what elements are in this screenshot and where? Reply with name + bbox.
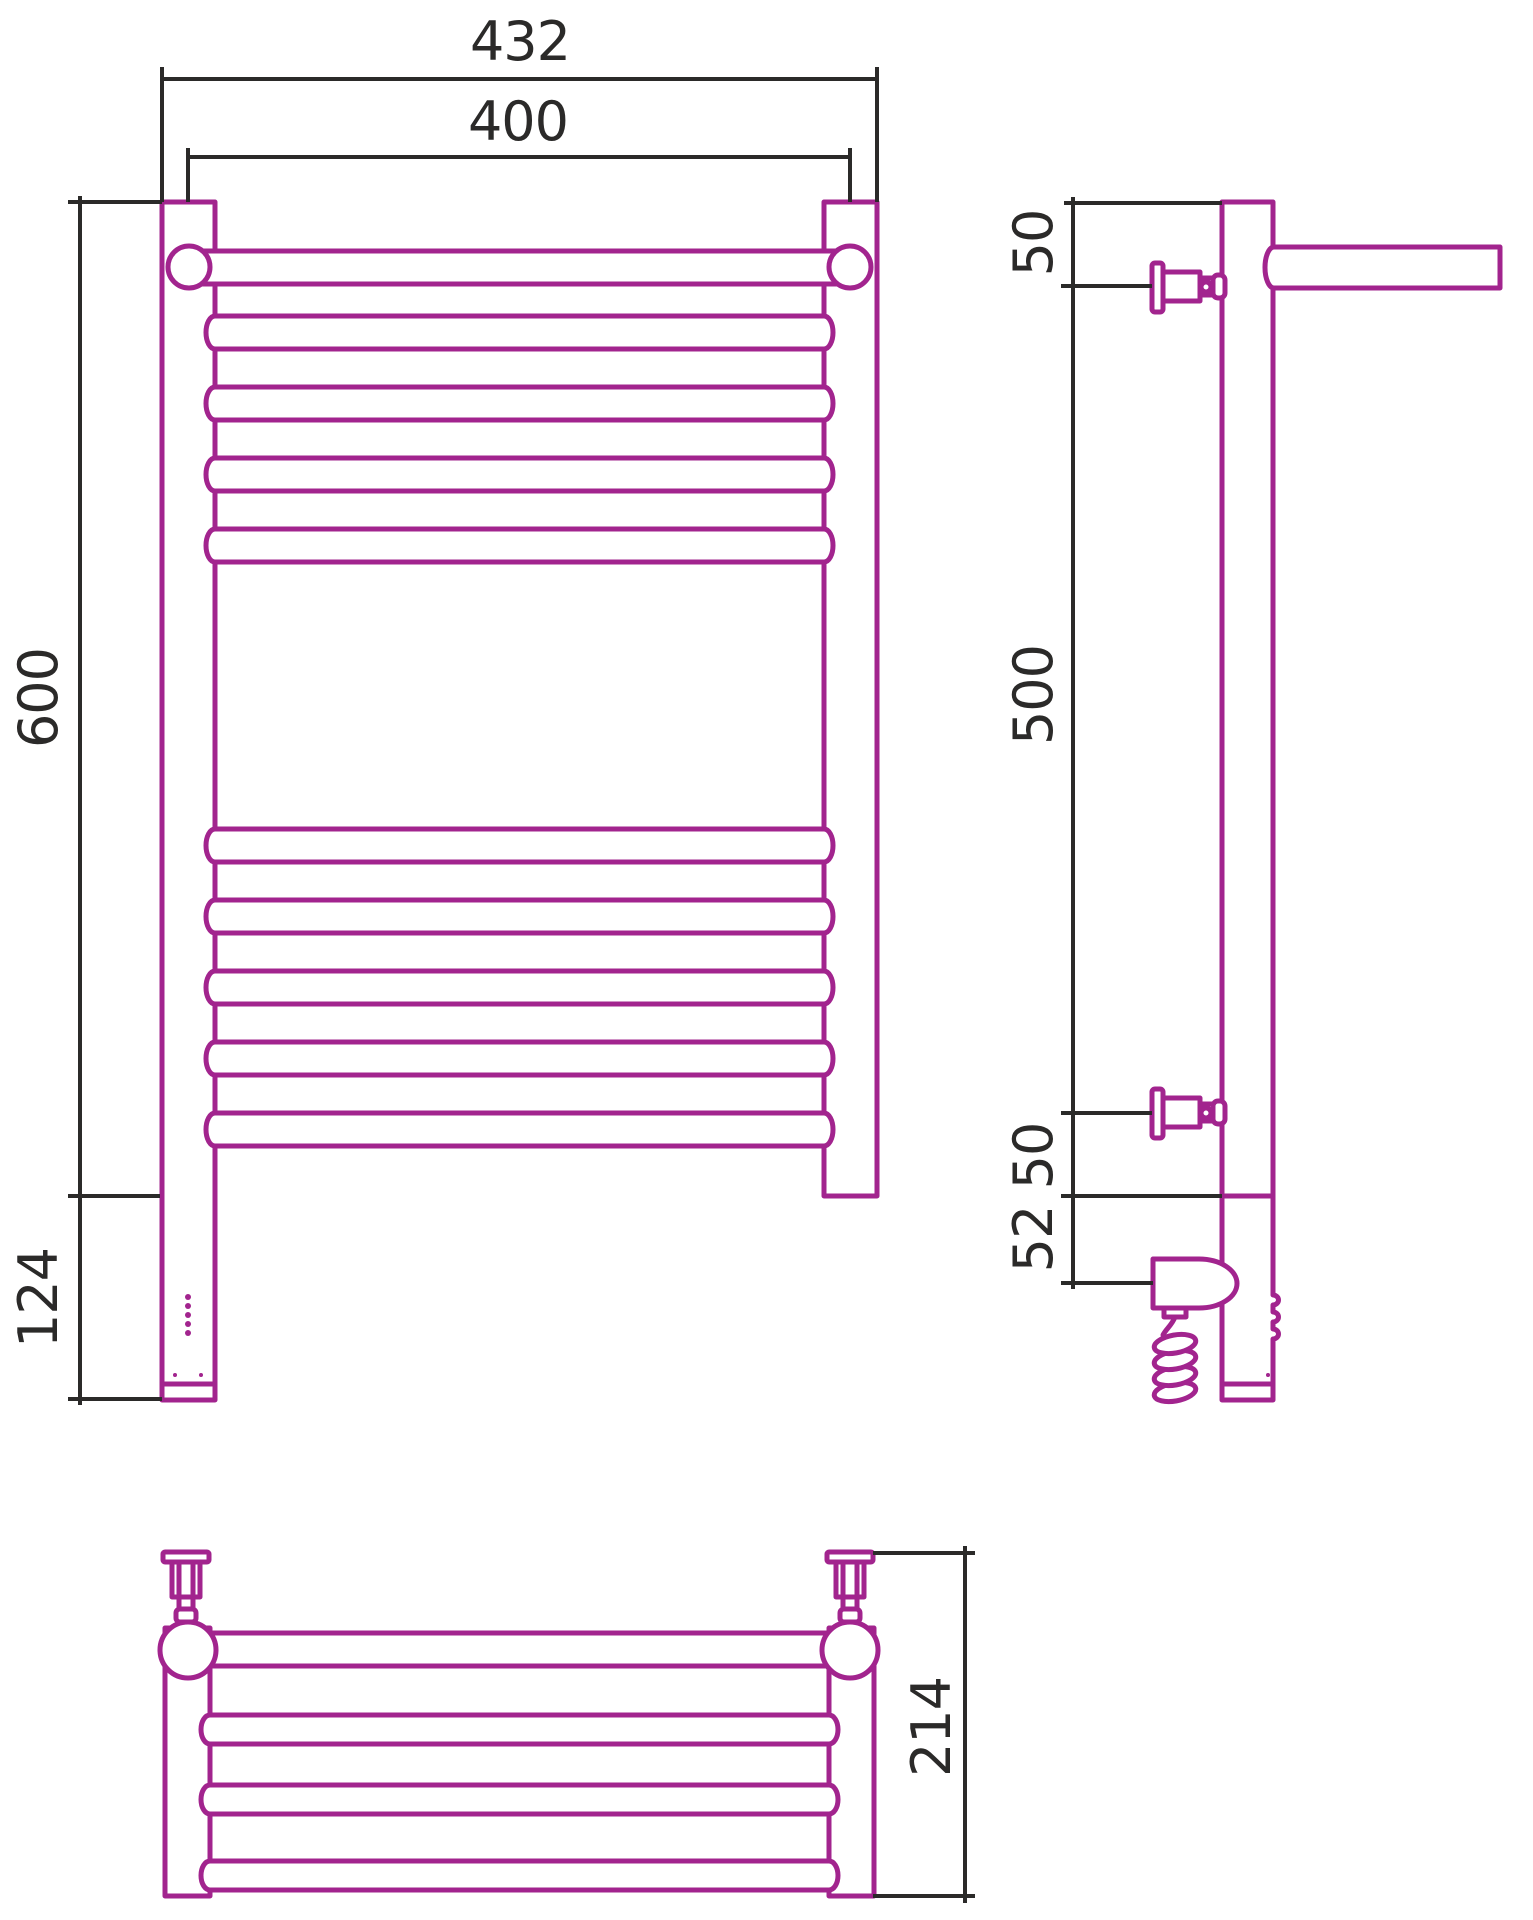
dim-axes-width: 400 xyxy=(188,90,850,202)
rung xyxy=(206,1042,833,1075)
shelf-bar xyxy=(201,1715,838,1744)
side-upper-wall-bracket xyxy=(1152,263,1225,312)
side-lower-wall-bracket xyxy=(1152,1089,1225,1138)
spiral-cord xyxy=(1153,1331,1197,1404)
rung xyxy=(206,900,833,933)
top-view xyxy=(160,1552,878,1896)
dim-label-element-offset: 52 xyxy=(1002,1206,1065,1273)
shelf-bar xyxy=(201,1861,838,1890)
rung xyxy=(206,829,833,862)
rung xyxy=(206,458,833,491)
rung xyxy=(206,387,833,420)
plan-left-wall-bracket xyxy=(163,1552,209,1622)
rung xyxy=(206,971,833,1004)
dim-height-stack: 600 124 xyxy=(7,196,162,1405)
dim-label-axes-width: 400 xyxy=(468,90,568,153)
dim-depth: 214 xyxy=(873,1546,975,1903)
plan-left-ball-joint xyxy=(160,1622,216,1678)
dim-label-height: 600 xyxy=(7,648,70,748)
plan-shelf-bars xyxy=(201,1715,838,1890)
side-view xyxy=(1152,202,1500,1405)
dim-label-top-offset: 50 xyxy=(1002,210,1065,277)
front-left-ball-joint xyxy=(168,246,210,288)
plan-right-wall-bracket xyxy=(827,1552,873,1622)
front-right-ball-joint xyxy=(829,246,871,288)
front-top-rung xyxy=(189,251,850,284)
plan-top-rung xyxy=(188,1633,850,1666)
dim-label-bottom-offset: 50 xyxy=(1002,1123,1065,1190)
front-rungs-lower xyxy=(206,829,833,1146)
front-left-post xyxy=(162,202,215,1400)
plan-right-ball-joint xyxy=(822,1622,878,1678)
front-view xyxy=(162,202,877,1400)
dim-label-span: 500 xyxy=(1002,645,1065,745)
rung xyxy=(206,529,833,562)
side-shelf-arm xyxy=(1265,247,1500,288)
shelf-bar xyxy=(201,1785,838,1814)
dim-label-depth: 214 xyxy=(900,1677,963,1777)
front-rungs-upper xyxy=(206,316,833,562)
dim-label-electric-height: 124 xyxy=(7,1248,70,1348)
towel-rail-technical-drawing: 432 400 600 124 50 500 50 52 214 xyxy=(0,0,1533,1920)
drawing-page: 432 400 600 124 50 500 50 52 214 xyxy=(0,0,1533,1920)
rung xyxy=(206,1113,833,1146)
rung xyxy=(206,316,833,349)
dim-label-overall-width: 432 xyxy=(470,10,570,73)
